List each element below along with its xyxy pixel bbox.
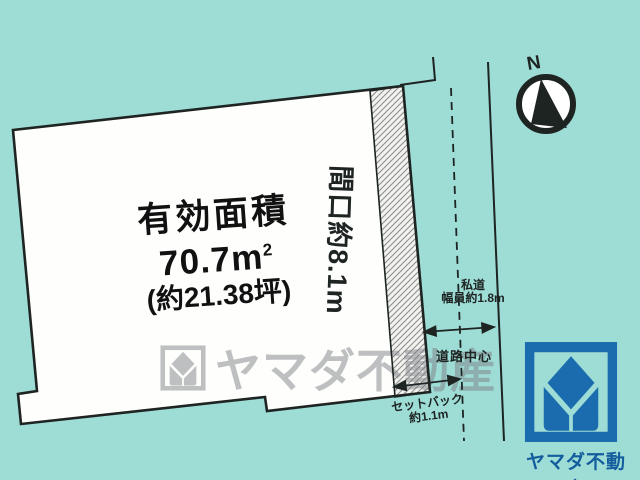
- company-name: ヤマダ不動産: [517, 447, 635, 480]
- setback-arrow: [394, 379, 460, 387]
- area-label: 有効面積 70.7m2 (約21.38坪): [96, 188, 336, 320]
- boundary-extension-line: [400, 57, 435, 85]
- compass: [519, 77, 573, 131]
- setback-strip-outline: [370, 86, 430, 397]
- yamada-logo-icon: [524, 341, 618, 443]
- frontage-label: 間口約8.1m: [319, 165, 363, 316]
- road-width-label: 私道 幅員約1.8m: [434, 279, 512, 305]
- road-center-dashed-line: [451, 88, 464, 441]
- plot-diagram: ヤマダ不動産 有効面積 70.7m2 (約21.38坪) 間口約8.1m 私道 …: [0, 0, 640, 480]
- road-center-label: 道路中心: [436, 346, 492, 365]
- road-width-value: 幅員約1.8m: [434, 292, 512, 305]
- road-edge-line: [488, 62, 504, 441]
- area-value-superscript: 2: [262, 240, 274, 260]
